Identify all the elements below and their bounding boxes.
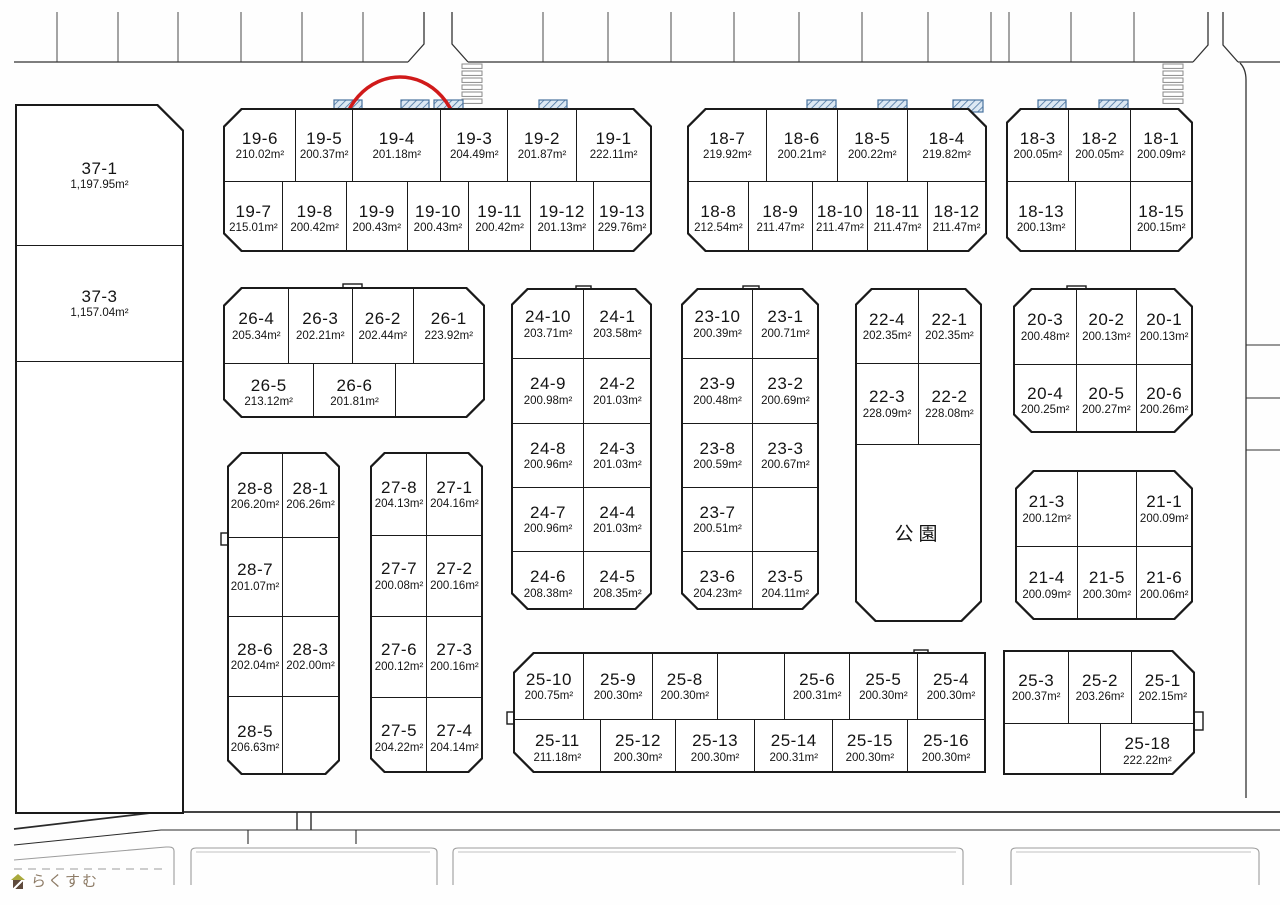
block-b27: 27-8204.13m²27-1204.16m²27-7200.08m²27-2… [370, 452, 483, 773]
lot-26-4: 26-4205.34m² [225, 289, 289, 363]
lot-number: 24-4 [599, 503, 635, 523]
lot-empty [396, 364, 483, 421]
lot-number: 18-4 [929, 129, 965, 149]
lot-number: 27-4 [436, 721, 472, 741]
lot-number: 23-10 [695, 307, 741, 327]
lot-number: 18-7 [709, 129, 745, 149]
lot-22-2: 22-2228.08m² [919, 364, 981, 444]
lot-number: 18-9 [762, 202, 798, 222]
lot-number: 18-13 [1018, 202, 1064, 222]
lot-area: 200.21m² [777, 149, 826, 161]
rakusumu-logo[interactable]: らくすむ [11, 874, 99, 889]
lot-25-1: 25-1202.15m² [1132, 652, 1193, 723]
lot-number: 37-1 [81, 159, 117, 179]
lot-area: 211.47m² [874, 222, 922, 234]
lot-23-9: 23-9200.48m² [683, 359, 754, 423]
lot-number: 19-6 [242, 129, 278, 149]
lot-empty [1078, 472, 1137, 546]
lot-25-14: 25-14200.31m² [755, 720, 833, 776]
lot-18-15: 18-15200.15m² [1131, 182, 1191, 255]
lot-26-1: 26-1223.92m² [414, 289, 483, 363]
lot-number: 公園 [894, 524, 942, 546]
lot-number: 22-2 [931, 387, 967, 407]
lot-area: 201.07m² [231, 581, 280, 593]
lot-number: 28-8 [237, 479, 273, 499]
lot-area: 204.14m² [430, 742, 479, 754]
lot-23-7: 23-7200.51m² [683, 488, 754, 551]
lot-area: 200.59m² [693, 459, 742, 471]
lot-area: 200.30m² [927, 690, 976, 702]
lot-number: 19-13 [599, 202, 645, 222]
lot-25-5: 25-5200.30m² [850, 654, 918, 719]
lot-area: 200.30m² [691, 752, 740, 764]
lot-area: 200.39m² [693, 328, 742, 340]
lot-area: 204.49m² [450, 149, 499, 161]
lot-19-10: 19-10200.43m² [408, 182, 470, 255]
lot-21-1: 21-1200.09m² [1137, 472, 1191, 546]
lot-number: 25-2 [1082, 671, 1118, 691]
lot-25-8: 25-8200.30m² [653, 654, 718, 719]
lot-number: 23-9 [699, 374, 735, 394]
lot-number: 18-3 [1020, 129, 1056, 149]
lot-number: 25-1 [1145, 671, 1181, 691]
lot-area: 200.51m² [693, 523, 742, 535]
lot-number: 18-15 [1138, 202, 1184, 222]
block-b21: 21-3200.12m²21-1200.09m²21-4200.09m²21-5… [1015, 470, 1193, 620]
lot-28-7: 28-7201.07m² [229, 538, 283, 616]
lot-number: 23-6 [699, 567, 735, 587]
lot-number: 26-3 [302, 309, 338, 329]
lot-area: 200.26m² [1140, 404, 1189, 416]
lot-area: 200.67m² [761, 459, 810, 471]
lot-19-6: 19-6210.02m² [225, 110, 297, 181]
lot-number: 25-6 [799, 670, 835, 690]
lot-area: 200.69m² [761, 395, 810, 407]
lot-area: 1,157.04m² [70, 307, 128, 319]
lot-19-4: 19-4201.18m² [353, 110, 441, 181]
lot-empty [17, 362, 183, 818]
lot-28-5: 28-5206.63m² [229, 697, 283, 780]
lot-23-2: 23-2200.69m² [753, 359, 817, 423]
lot-empty [753, 488, 817, 551]
lot-area: 202.15m² [1138, 691, 1187, 703]
lot-number: 20-5 [1088, 384, 1124, 404]
lot-empty [1005, 724, 1102, 778]
lot-25-16: 25-16200.30m² [908, 720, 985, 776]
lot-number: 28-1 [292, 479, 328, 499]
lot-area: 200.42m² [475, 222, 524, 234]
lot-number: 20-6 [1146, 384, 1182, 404]
lot-area: 203.26m² [1076, 691, 1125, 703]
lot-area: 200.13m² [1082, 331, 1131, 343]
lot-number: 27-5 [381, 721, 417, 741]
lot-23-3: 23-3200.67m² [753, 424, 817, 487]
logo-text: らくすむ [31, 874, 99, 889]
lot-area: 200.96m² [524, 523, 573, 535]
block-b19: 19-6210.02m²19-5200.37m²19-4201.18m²19-3… [223, 108, 652, 252]
lot-number: 18-10 [817, 202, 863, 222]
lot-28-6: 28-6202.04m² [229, 617, 283, 696]
lot-27-3: 27-3200.16m² [427, 617, 481, 697]
lot-25-9: 25-9200.30m² [584, 654, 653, 719]
block-b20: 20-3200.48m²20-2200.13m²20-1200.13m²20-4… [1013, 288, 1193, 433]
lot-number: 19-4 [379, 129, 415, 149]
lot-number: 28-5 [237, 722, 273, 742]
lot-28-8: 28-8206.20m² [229, 454, 283, 537]
lot-area: 201.81m² [330, 396, 379, 408]
bottom-road-lines [14, 812, 1280, 885]
lot-number: 28-3 [292, 640, 328, 660]
lot-area: 206.63m² [231, 742, 280, 754]
lot-number: 28-7 [237, 560, 273, 580]
lot-number: 28-6 [237, 640, 273, 660]
lot-number: 21-5 [1089, 568, 1125, 588]
lot-area: 206.20m² [231, 499, 280, 511]
lot-area: 215.01m² [229, 222, 278, 234]
lot-area: 204.13m² [375, 498, 424, 510]
lot-18-7: 18-7219.92m² [689, 110, 767, 181]
block-b22: 22-4202.35m²22-1202.35m²22-3228.09m²22-2… [855, 288, 982, 622]
lot-area: 200.30m² [660, 690, 709, 702]
lot-area: 200.30m² [846, 752, 895, 764]
lot-number: 19-10 [415, 202, 461, 222]
lot-area: 200.13m² [1140, 331, 1189, 343]
lot-area: 200.30m² [922, 752, 971, 764]
lot-21-6: 21-6200.06m² [1137, 547, 1191, 623]
lot-24-6: 24-6208.38m² [513, 552, 585, 616]
lot-area: 200.30m² [614, 752, 663, 764]
house-icon [11, 874, 26, 889]
lot-19-8: 19-8200.42m² [283, 182, 347, 255]
lot-area: 223.92m² [424, 330, 473, 342]
lot-18-3: 18-3200.05m² [1008, 110, 1069, 181]
lot-25-18: 25-18222.22m² [1101, 724, 1193, 778]
lot-number: 19-9 [359, 202, 395, 222]
lot-area: 212.54m² [694, 222, 743, 234]
lot-number: 22-4 [869, 310, 905, 330]
lot-area: 202.21m² [296, 330, 345, 342]
lot-area: 202.35m² [863, 330, 912, 342]
lot-number: 27-1 [436, 478, 472, 498]
lot-21-3: 21-3200.12m² [1017, 472, 1078, 546]
lot-area: 200.22m² [848, 149, 897, 161]
lot-24-4: 24-4201.03m² [584, 488, 650, 551]
lot-number: 24-6 [530, 567, 566, 587]
lot-number: 22-3 [869, 387, 905, 407]
lot-area: 200.30m² [594, 690, 643, 702]
lot-number: 18-1 [1143, 129, 1179, 149]
lot-number: 22-1 [931, 310, 967, 330]
lot-18-13: 18-13200.13m² [1008, 182, 1076, 255]
lot-number: 19-3 [456, 129, 492, 149]
lot-area: 200.27m² [1082, 404, 1131, 416]
lot-area: 203.71m² [524, 328, 573, 340]
lot-number: 18-8 [700, 202, 736, 222]
lot-area: 211.18m² [533, 752, 581, 764]
lot-area: 200.98m² [524, 395, 573, 407]
lot-number: 21-1 [1146, 492, 1182, 512]
lot-area: 202.00m² [286, 660, 335, 672]
lot-20-4: 20-4200.25m² [1015, 365, 1077, 436]
lot-area: 228.08m² [925, 408, 974, 420]
lot-23-10: 23-10200.39m² [683, 290, 754, 358]
lot-number: 26-1 [431, 309, 467, 329]
lot-area: 201.13m² [538, 222, 587, 234]
lot-28-3: 28-3202.00m² [283, 617, 339, 696]
lot-number: 20-1 [1146, 310, 1182, 330]
lot-number: 24-5 [599, 567, 635, 587]
lot-area: 200.12m² [375, 661, 424, 673]
lot-number: 19-12 [539, 202, 585, 222]
lot-area: 200.15m² [1137, 222, 1186, 234]
lot-25-3: 25-3200.37m² [1005, 652, 1069, 723]
lot-area: 200.09m² [1140, 513, 1189, 525]
lot-18-4: 18-4219.82m² [908, 110, 985, 181]
lot-number: 27-2 [436, 559, 472, 579]
lot-number: 27-8 [381, 478, 417, 498]
lot-area: 200.37m² [1012, 691, 1061, 703]
lot-number: 19-8 [297, 202, 333, 222]
lot-area: 200.09m² [1022, 589, 1071, 601]
lot-area: 201.03m² [593, 395, 642, 407]
lot-25-15: 25-15200.30m² [833, 720, 908, 776]
lot-area: 229.76m² [598, 222, 647, 234]
lot-number: 18-12 [934, 202, 980, 222]
lot-area: 210.02m² [236, 149, 285, 161]
lot-number: 23-5 [767, 567, 803, 587]
lot-number: 27-3 [436, 640, 472, 660]
lot-27-8: 27-8204.13m² [372, 454, 428, 535]
lot-area: 202.35m² [925, 330, 974, 342]
lot-number: 23-8 [699, 439, 735, 459]
lot-area: 200.12m² [1022, 513, 1071, 525]
lot-area: 211.47m² [933, 222, 981, 234]
lot-area: 208.35m² [593, 588, 642, 600]
lot-number: 18-11 [875, 202, 920, 222]
lot-23-8: 23-8200.59m² [683, 424, 754, 487]
land-plot-map: らくすむ 37-11,197.95m²37-31,157.04m²19-6210… [0, 0, 1280, 905]
lot-18-6: 18-6200.21m² [767, 110, 838, 181]
lot-number: 24-10 [525, 307, 571, 327]
lot-25-12: 25-12200.30m² [601, 720, 676, 776]
lot-19-1: 19-1222.11m² [577, 110, 651, 181]
lot-area: 219.92m² [703, 149, 752, 161]
lot-number: 23-2 [767, 374, 803, 394]
lot-18-8: 18-8212.54m² [689, 182, 750, 255]
lot-area: 200.09m² [1137, 149, 1186, 161]
lot-20-6: 20-6200.26m² [1137, 365, 1191, 436]
lot-area: 200.16m² [430, 661, 479, 673]
lot-number: 25-18 [1124, 734, 1170, 754]
lot-area: 200.05m² [1075, 149, 1124, 161]
block-b28: 28-8206.20m²28-1206.26m²28-7201.07m²28-6… [227, 452, 340, 775]
lot-number: 24-2 [599, 374, 635, 394]
block-b25R: 25-3200.37m²25-2203.26m²25-1202.15m²25-1… [1003, 650, 1195, 775]
lot-24-9: 24-9200.98m² [513, 359, 585, 423]
lot-18-10: 18-10211.47m² [813, 182, 869, 255]
lot-26-6: 26-6201.81m² [314, 364, 396, 421]
lot-number: 19-5 [306, 129, 342, 149]
lot-area: 205.34m² [232, 330, 281, 342]
lot-25-10: 25-10200.75m² [515, 654, 585, 719]
lot-area: 213.12m² [244, 396, 293, 408]
lot-number: 24-1 [599, 307, 635, 327]
lot-number: 37-3 [81, 287, 117, 307]
lot-26-2: 26-2202.44m² [353, 289, 415, 363]
lot-area: 200.43m² [414, 222, 463, 234]
lot-24-8: 24-8200.96m² [513, 424, 585, 487]
crosswalk-right-icon [1163, 64, 1183, 103]
lot-number: 27-7 [381, 559, 417, 579]
lot-number: 18-2 [1081, 129, 1117, 149]
lot-27-1: 27-1204.16m² [427, 454, 481, 535]
lot-27-7: 27-7200.08m² [372, 536, 428, 616]
lot-area: 200.31m² [769, 752, 818, 764]
lot-area: 201.18m² [372, 149, 421, 161]
lot-area: 211.47m² [816, 222, 864, 234]
lot-number: 25-4 [933, 670, 969, 690]
block-b18L: 18-7219.92m²18-6200.21m²18-5200.22m²18-4… [687, 108, 987, 252]
lot-area: 203.58m² [593, 328, 642, 340]
lot-25-11: 25-11211.18m² [515, 720, 602, 776]
lot-number: 20-3 [1027, 310, 1063, 330]
lot-27-5: 27-5204.22m² [372, 698, 428, 778]
lot-area: 201.03m² [593, 523, 642, 535]
lot-area: 200.48m² [693, 395, 742, 407]
lot-number: 24-7 [530, 503, 566, 523]
lot-23-5: 23-5204.11m² [753, 552, 817, 616]
lot-number: 18-6 [784, 129, 820, 149]
lot-23-6: 23-6204.23m² [683, 552, 754, 616]
lot-empty [283, 697, 339, 780]
lot-number: 25-3 [1018, 671, 1054, 691]
lot-20-1: 20-1200.13m² [1137, 290, 1191, 364]
lot-26-3: 26-3202.21m² [289, 289, 352, 363]
lot-19-7: 19-7215.01m² [225, 182, 284, 255]
lot-area: 200.96m² [524, 459, 573, 471]
lot-area: 219.82m² [922, 149, 971, 161]
lot-empty [283, 538, 339, 616]
lot-area: 200.08m² [375, 580, 424, 592]
lot-area: 204.11m² [762, 588, 810, 600]
lot-number: 23-1 [767, 307, 803, 327]
lot-area: 200.71m² [761, 328, 810, 340]
lot-number: 24-3 [599, 439, 635, 459]
lot-area: 200.43m² [353, 222, 402, 234]
lot-24-1: 24-1203.58m² [584, 290, 650, 358]
lot-number: 19-2 [524, 129, 560, 149]
lot-19-2: 19-2201.87m² [508, 110, 577, 181]
lot-area: 200.16m² [430, 580, 479, 592]
lot-number: 26-2 [365, 309, 401, 329]
lot-number: 25-11 [535, 731, 580, 751]
lot-19-5: 19-5200.37m² [296, 110, 353, 181]
lot-number: 24-9 [530, 374, 566, 394]
lot-number: 25-9 [600, 670, 636, 690]
lot-number: 25-14 [771, 731, 817, 751]
lot-number: 19-1 [596, 129, 632, 149]
lot-number: 25-16 [923, 731, 969, 751]
lot-area: 211.47m² [756, 222, 804, 234]
lot-22-3: 22-3228.09m² [857, 364, 919, 444]
lot-27-4: 27-4204.14m² [427, 698, 481, 778]
lot-number: 20-4 [1027, 384, 1063, 404]
lot-area: 204.22m² [375, 742, 424, 754]
lot-number: 26-4 [238, 309, 274, 329]
lot-21-4: 21-4200.09m² [1017, 547, 1078, 623]
lot-number: 25-15 [847, 731, 893, 751]
lot-20-2: 20-2200.13m² [1077, 290, 1137, 364]
lot-25-13: 25-13200.30m² [676, 720, 756, 776]
lot-area: 200.25m² [1021, 404, 1070, 416]
lot-number: 21-3 [1029, 492, 1065, 512]
lot-area: 204.16m² [430, 498, 479, 510]
lot-25-4: 25-4200.30m² [918, 654, 985, 719]
lot-26-5: 26-5213.12m² [225, 364, 314, 421]
lot-number: 25-13 [692, 731, 738, 751]
lot-18-1: 18-1200.09m² [1131, 110, 1191, 181]
north-lot-boundary-ticks [57, 12, 1134, 62]
lot-number: 25-10 [526, 670, 572, 690]
lot-number: 25-12 [615, 731, 661, 751]
lot-area: 202.44m² [359, 330, 408, 342]
lot-19-3: 19-3204.49m² [441, 110, 508, 181]
lot-18-5: 18-5200.22m² [838, 110, 909, 181]
lot-21-5: 21-5200.30m² [1078, 547, 1137, 623]
block-b26: 26-4205.34m²26-3202.21m²26-2202.44m²26-1… [223, 287, 485, 418]
lot-24-3: 24-3201.03m² [584, 424, 650, 487]
lot-area: 200.42m² [290, 222, 339, 234]
lot-area: 200.31m² [793, 690, 842, 702]
block-b18R: 18-3200.05m²18-2200.05m²18-1200.09m²18-1… [1006, 108, 1193, 252]
lot-area: 204.23m² [693, 588, 742, 600]
lot-number: 25-8 [667, 670, 703, 690]
lot-area: 202.04m² [231, 660, 280, 672]
lot-28-1: 28-1206.26m² [283, 454, 339, 537]
lot-area: 222.22m² [1123, 755, 1172, 767]
lot-19-11: 19-11200.42m² [469, 182, 531, 255]
lot-area: 206.26m² [286, 499, 335, 511]
lot-area: 200.05m² [1013, 149, 1062, 161]
lot-number: 19-7 [235, 202, 271, 222]
lot-number: 18-5 [854, 129, 890, 149]
lot-number: 26-6 [336, 376, 372, 396]
lot-number: 21-4 [1029, 568, 1065, 588]
lot-number: 23-3 [767, 439, 803, 459]
lot-number: 26-5 [251, 376, 287, 396]
lot-23-1: 23-1200.71m² [753, 290, 817, 358]
lot-18-2: 18-2200.05m² [1069, 110, 1131, 181]
lot-area: 200.30m² [859, 690, 908, 702]
lot-20-5: 20-5200.27m² [1077, 365, 1137, 436]
lot-24-10: 24-10203.71m² [513, 290, 585, 358]
lot-area: 208.38m² [524, 588, 573, 600]
lot-number: 25-5 [865, 670, 901, 690]
lot-37-1: 37-11,197.95m² [17, 106, 183, 245]
lot-area: 200.48m² [1021, 331, 1070, 343]
lot-area: 200.30m² [1083, 589, 1132, 601]
lot-area: 222.11m² [590, 149, 638, 161]
block-b37: 37-11,197.95m²37-31,157.04m² [15, 104, 184, 814]
lot-27-2: 27-2200.16m² [427, 536, 481, 616]
lot-37-3: 37-31,157.04m² [17, 246, 183, 361]
lot-number: 19-11 [477, 202, 522, 222]
lot-area: 1,197.95m² [70, 179, 128, 191]
lot-number: 27-6 [381, 640, 417, 660]
lot-25-6: 25-6200.31m² [785, 654, 850, 719]
lot-19-12: 19-12201.13m² [531, 182, 594, 255]
block-b25L: 25-10200.75m²25-9200.30m²25-8200.30m²25-… [513, 652, 986, 773]
